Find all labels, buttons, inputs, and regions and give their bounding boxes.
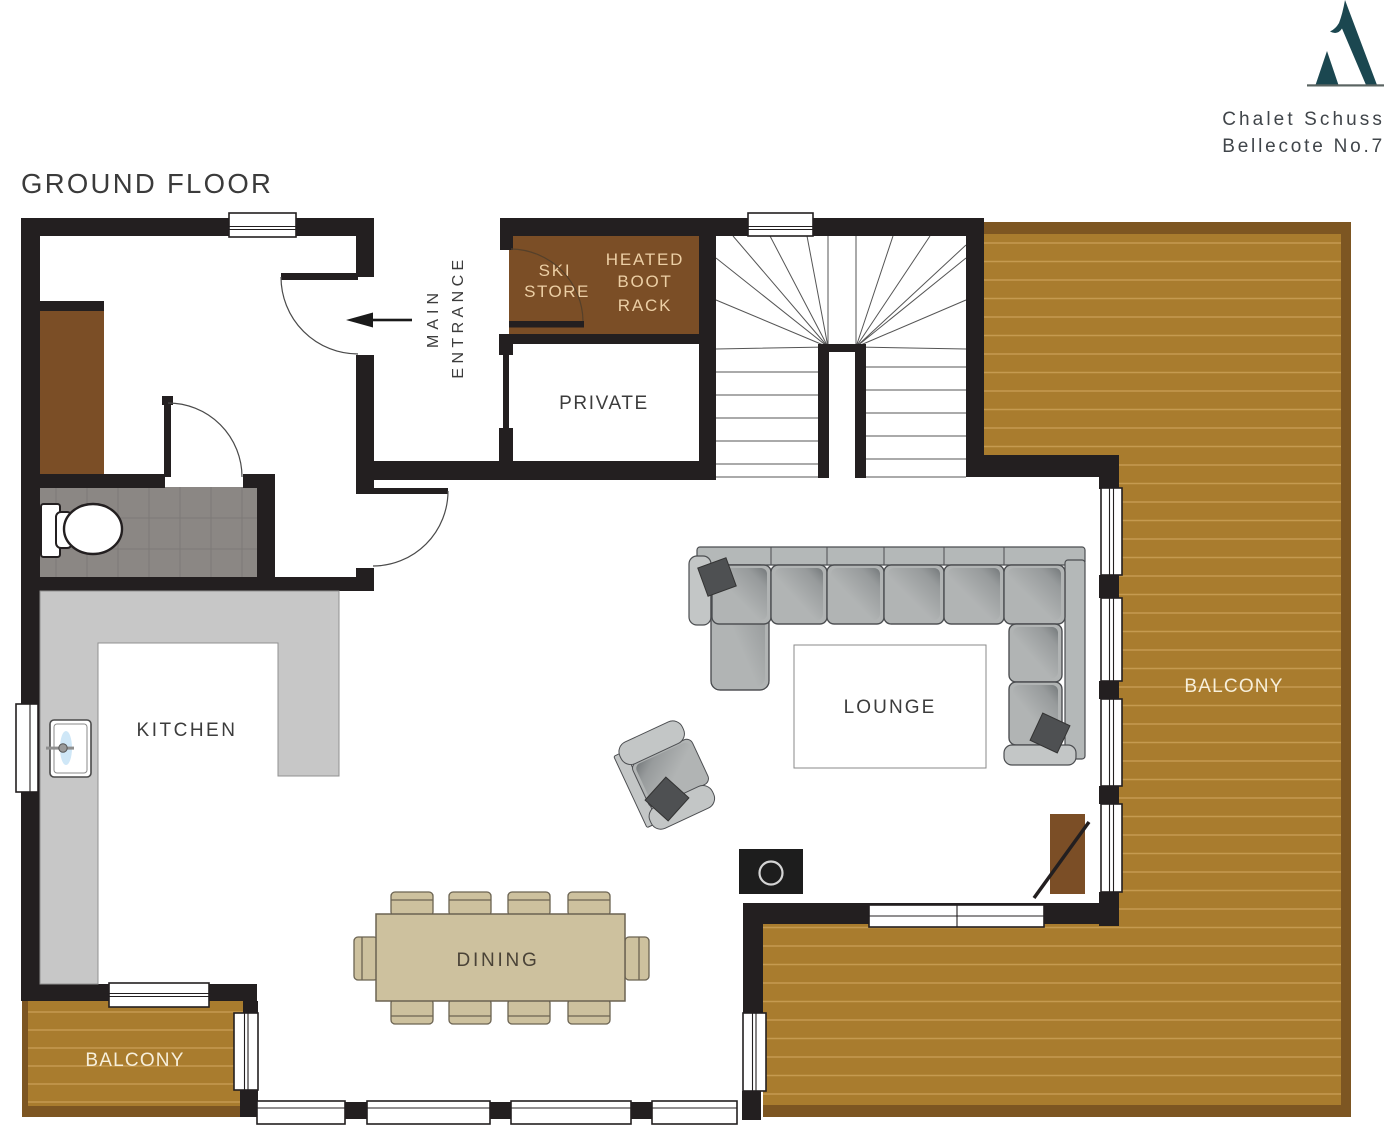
svg-text:MAIN: MAIN bbox=[425, 288, 442, 348]
svg-text:GROUND FLOOR: GROUND FLOOR bbox=[21, 168, 273, 199]
svg-text:HEATED: HEATED bbox=[606, 250, 685, 269]
svg-text:DINING: DINING bbox=[457, 950, 540, 971]
svg-text:KITCHEN: KITCHEN bbox=[137, 720, 238, 741]
svg-text:LOUNGE: LOUNGE bbox=[844, 697, 937, 718]
svg-text:STORE: STORE bbox=[524, 282, 590, 301]
svg-text:ENTRANCE: ENTRANCE bbox=[450, 255, 467, 378]
svg-text:PRIVATE: PRIVATE bbox=[559, 393, 649, 414]
svg-text:Bellecote No.7: Bellecote No.7 bbox=[1222, 136, 1385, 157]
svg-text:BALCONY: BALCONY bbox=[1184, 676, 1283, 697]
svg-text:BOOT: BOOT bbox=[617, 272, 672, 291]
svg-text:RACK: RACK bbox=[618, 296, 672, 315]
svg-text:Chalet Schuss: Chalet Schuss bbox=[1222, 109, 1385, 130]
svg-text:BALCONY: BALCONY bbox=[85, 1050, 184, 1071]
